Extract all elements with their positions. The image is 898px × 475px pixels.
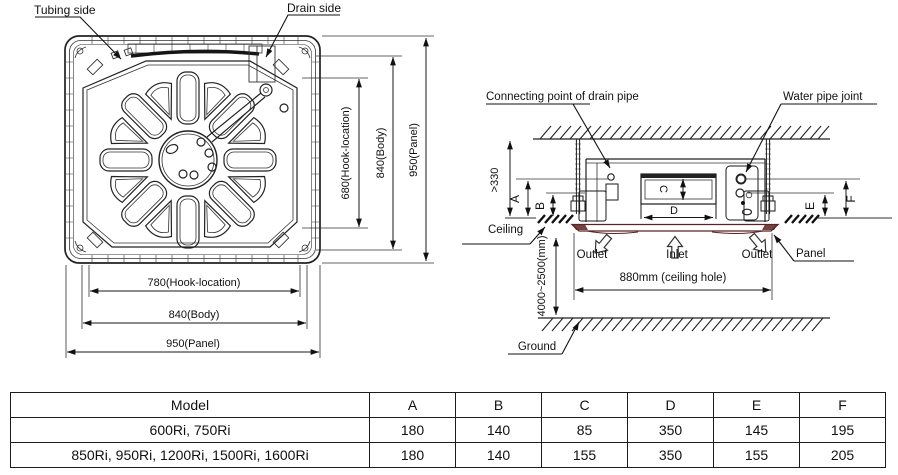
body-octagon [83, 61, 297, 247]
ground: Ground [508, 318, 830, 354]
table-cell: 350 [628, 418, 714, 443]
table-header-b: B [456, 393, 542, 418]
dim-840-body-v: 840(Body) [375, 128, 387, 179]
dim-min-330: >330 [489, 168, 501, 193]
table-header-f: F [800, 393, 886, 418]
page: Tubing side Drain side 680(Hook-location… [0, 0, 898, 475]
panel-label: Panel [796, 248, 825, 260]
table-header-a: A [370, 393, 456, 418]
panel-rim [65, 36, 320, 263]
table-row: 850Ri, 950Ri, 1200Ri, 1500Ri, 1600Ri 180… [11, 443, 886, 468]
ground-label: Ground [518, 341, 556, 353]
table-cell: 350 [628, 443, 714, 468]
table-cell: 140 [456, 443, 542, 468]
dim-780-hook: 780(Hook-location) [148, 277, 241, 289]
horizontal-dimensions: 780(Hook-location) 840(Body) 950(Panel) [66, 265, 320, 358]
dim-950-panel-v: 950(Panel) [408, 123, 420, 177]
table-cell: 205 [800, 443, 886, 468]
dim-680-hook: 680(Hook-location) [340, 107, 352, 200]
table-cell: 195 [800, 418, 886, 443]
suspended-ceiling [505, 215, 892, 223]
table-header-row: Model A B C D E F [11, 393, 886, 418]
hook-brackets [87, 59, 289, 248]
dim-label-a: A [508, 195, 522, 203]
table-row: 600Ri, 750Ri 180 140 85 350 145 195 [11, 418, 886, 443]
airflow: Outlet Inlet Outlet [577, 231, 773, 261]
table-cell: 155 [542, 443, 628, 468]
unit-body: C D [579, 159, 769, 222]
table-cell: 155 [714, 443, 800, 468]
dim-label-e: E [803, 202, 817, 210]
fan-vee-cutouts [107, 79, 269, 241]
floor-height-dimension: 4000~2500(mm) [536, 235, 556, 316]
top-air-vane [128, 44, 262, 56]
table-cell: 180 [370, 418, 456, 443]
outlet-left-label: Outlet [577, 249, 608, 261]
side-view-installation-diagram: C D >330 A B E F Connecting point of dra… [450, 0, 898, 378]
rim-ticks [66, 37, 319, 262]
dim-floor-height: 4000~2500(mm) [536, 235, 548, 316]
fan-hub [159, 131, 217, 189]
table-header-model: Model [11, 393, 370, 418]
drain-side-label: Drain side [287, 1, 341, 15]
dimension-table: Model A B C D E F 600Ri, 750Ri 180 140 8… [10, 392, 886, 468]
dim-label-c: C [657, 185, 669, 193]
table-cell: 85 [542, 418, 628, 443]
tubing-side-label: Tubing side [34, 3, 96, 17]
fan-spokes [100, 72, 276, 248]
water-pipe-callout: Water pipe joint [783, 91, 863, 103]
top-view-diagram: Tubing side Drain side 680(Hook-location… [0, 0, 460, 378]
drain-pipe-callout: Connecting point of drain pipe [486, 91, 639, 103]
dim-880-ceiling-hole: 880mm (ceiling hole) [620, 272, 727, 284]
ceiling-label: Ceiling [488, 224, 523, 236]
outlet-right-label: Outlet [742, 249, 773, 261]
inlet-label: Inlet [666, 249, 689, 261]
table-header-c: C [542, 393, 628, 418]
drain-pipe-connection-point [608, 174, 614, 180]
table-header-d: D [628, 393, 714, 418]
table-cell-model: 600Ri, 750Ri [11, 418, 370, 443]
dim-950-panel-h: 950(Panel) [166, 338, 220, 350]
table-cell: 145 [714, 418, 800, 443]
dim-label-d: D [670, 205, 678, 217]
dim-label-b: B [533, 202, 547, 210]
table-cell-model: 850Ri, 950Ri, 1200Ri, 1500Ri, 1600Ri [11, 443, 370, 468]
dim-840-body-h: 840(Body) [169, 309, 220, 321]
ceiling-slab [533, 126, 830, 139]
decoration-panel [572, 225, 778, 234]
dim-label-f: F [844, 195, 858, 202]
electrical-box: C D [641, 174, 716, 219]
fan-pattern [100, 72, 276, 248]
vertical-dimensions: 680(Hook-location) 840(Body) 950(Panel) [302, 36, 434, 263]
table-cell: 140 [456, 418, 542, 443]
table-header-e: E [714, 393, 800, 418]
table-cell: 180 [370, 443, 456, 468]
